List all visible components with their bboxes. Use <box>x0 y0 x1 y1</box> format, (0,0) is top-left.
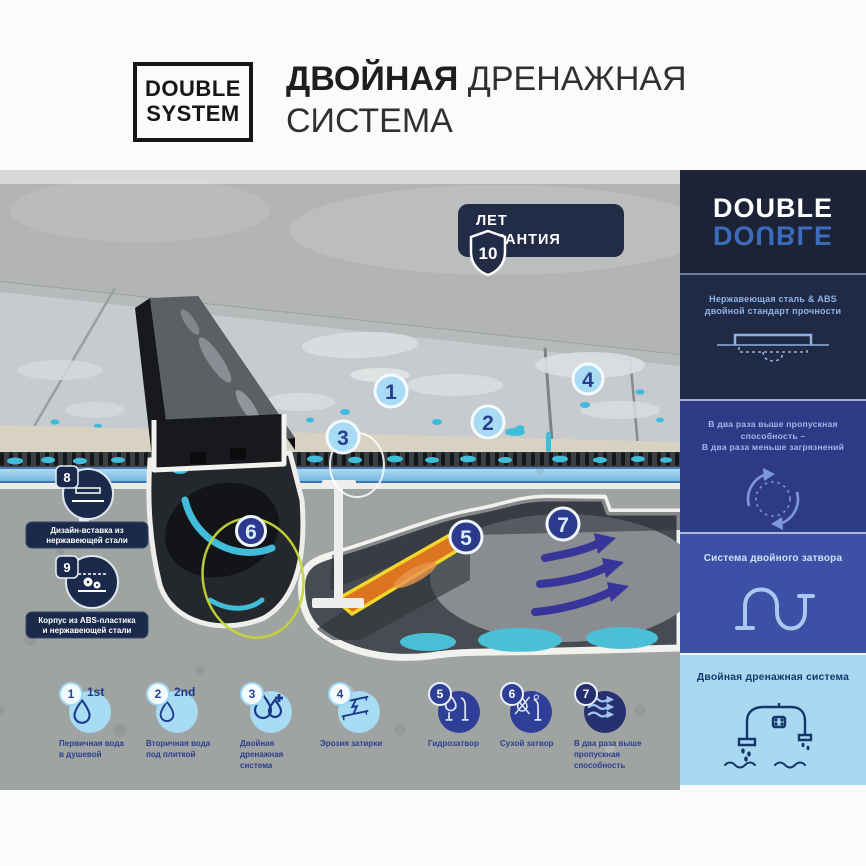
legend-tag-1st: 1st <box>87 685 104 699</box>
callout-8-label-1: Дизайн-вставка из <box>50 526 123 535</box>
sidebar-logo-panel: DOUBLE DOUBLE <box>680 170 866 273</box>
circulation-icon <box>680 464 866 539</box>
sidebar-panel-double-drainage: Двойная дренажная система <box>680 653 866 785</box>
sidebar-panel-double-seal: Система двойного затвора <box>680 532 866 653</box>
guarantee-years: 10 <box>479 244 498 263</box>
channel-profile-icon <box>680 327 866 376</box>
marker-5: 5 <box>460 527 472 550</box>
s-trap-icon <box>680 576 866 643</box>
sidebar-panel-throughput: В два раза выше пропускная способность –… <box>680 399 866 532</box>
page-title: ДВОЙНАЯ ДРЕНАЖНАЯ СИСТЕМА <box>286 58 687 142</box>
brand-logo-box: DOUBLE SYSTEM <box>133 62 253 142</box>
title-light: ДРЕНАЖНАЯ <box>458 60 686 98</box>
marker-2: 2 <box>482 412 494 435</box>
callout-8-number: 8 <box>63 470 70 485</box>
marker-3: 3 <box>337 427 349 450</box>
infographic-page: DOUBLE SYSTEM ДВОЙНАЯ ДРЕНАЖНАЯ СИСТЕМА <box>0 0 866 866</box>
sidebar-logo-reflection: DOUBLE <box>713 222 833 248</box>
double-pipe-icon <box>680 695 866 778</box>
legend-badge-3: 3 <box>240 682 264 706</box>
legend-badge-2: 2 <box>146 682 170 706</box>
legend-badge-6: 6 <box>500 682 524 706</box>
callout-8-label-2: нержавеющей стали <box>46 536 128 545</box>
callout-9-label-1: Корпус из ABS-пластика <box>38 616 136 625</box>
guarantee-badge: 10 ЛЕТ ГАРАНТИЯ <box>458 204 624 257</box>
marker-7: 7 <box>557 514 569 537</box>
sidebar-logo: DOUBLE <box>713 196 833 222</box>
sidebar-panel-materials: Нержавеющая сталь & ABSдвойной стандарт … <box>680 273 866 399</box>
legend-badge-5: 5 <box>428 682 452 706</box>
marker-6: 6 <box>245 521 257 544</box>
callout-9-number: 9 <box>63 560 70 575</box>
marker-4: 4 <box>582 369 594 392</box>
legend-badge-1: 1 <box>59 682 83 706</box>
callout-9-label-2: и нержавеющей стали <box>43 626 132 635</box>
brand-logo-line1: DOUBLE <box>145 77 241 102</box>
feature-sidebar: DOUBLE DOUBLE Нержавеющая сталь & ABSдво… <box>680 170 866 787</box>
title-line2: СИСТЕМА <box>286 100 687 142</box>
marker-1: 1 <box>385 381 397 404</box>
title-bold: ДВОЙНАЯ <box>286 60 458 98</box>
brand-logo-line2: SYSTEM <box>146 102 239 127</box>
legend-badge-4: 4 <box>328 682 352 706</box>
legend-badge-7: 7 <box>574 682 598 706</box>
cutaway-illustration: 1 2 3 4 5 6 7 8 <box>0 170 680 790</box>
legend-tag-2nd: 2nd <box>174 685 195 699</box>
